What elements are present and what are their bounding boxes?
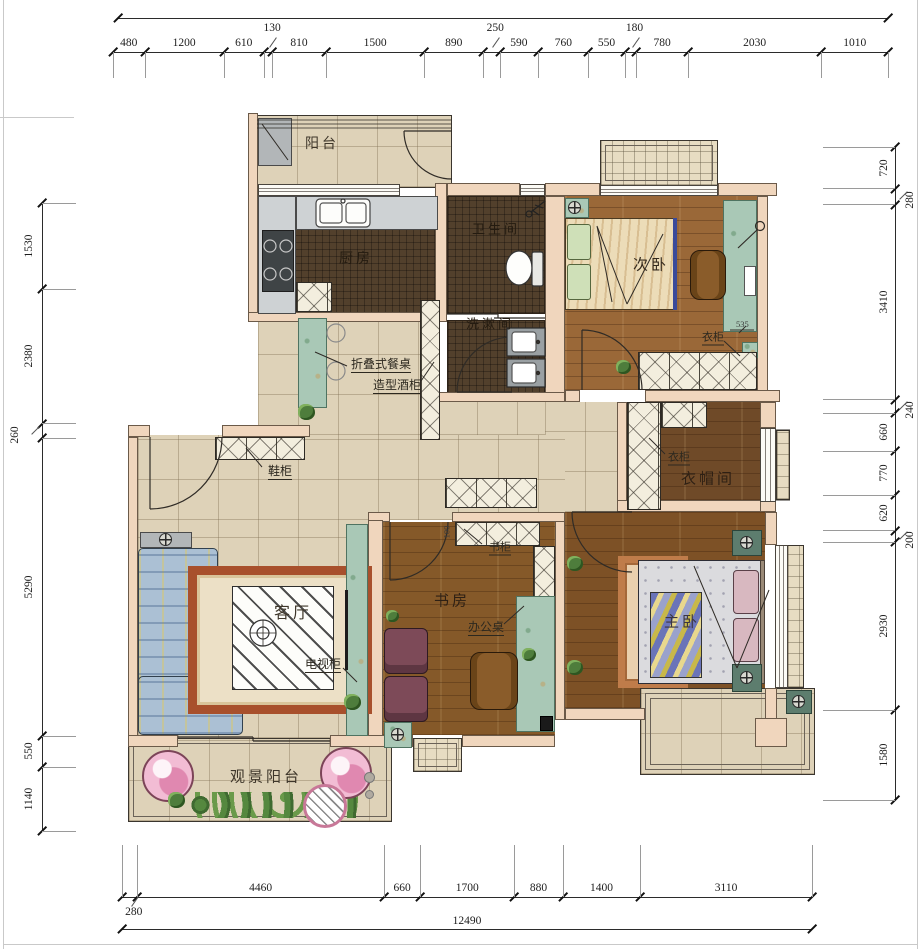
total-width-label: 12490: [453, 915, 482, 927]
dimension-label: 2030: [743, 37, 766, 49]
dimension-line: [384, 845, 385, 897]
dimension-label: 780: [654, 37, 671, 49]
dimension-label: 660: [878, 423, 890, 440]
dimension-line: [424, 52, 425, 78]
dimension-label: 1200: [173, 37, 196, 49]
dimension-line: [326, 52, 327, 78]
dimension-label: 1400: [590, 882, 613, 894]
dimension-label: 3410: [878, 290, 890, 313]
dimension-label: 2380: [23, 345, 35, 368]
dimension-label: 890: [445, 37, 462, 49]
dimension-label: 550: [598, 37, 615, 49]
dimension-line: [823, 495, 895, 496]
dimension-label: 590: [510, 37, 527, 49]
dimension-line: [42, 736, 76, 737]
dimension-line: [42, 831, 76, 832]
dimension-label: 720: [878, 159, 890, 176]
dimension-label: 610: [235, 37, 252, 49]
dimension-line: [42, 203, 76, 204]
dimension-line: [895, 147, 896, 800]
dimension-leader: [492, 37, 500, 47]
dimension-label: 620: [878, 504, 890, 521]
dimension-line: [42, 289, 76, 290]
dimension-label: 130: [263, 22, 280, 34]
dimension-line: [823, 710, 895, 711]
dimension-line: [823, 451, 895, 452]
dimension-line: [823, 147, 895, 148]
dimension-label: 250: [487, 22, 504, 34]
dimension-line: [42, 767, 76, 768]
dimension-line: [224, 52, 225, 78]
dimension-line: [137, 845, 138, 897]
dimension-label: 660: [393, 882, 410, 894]
dimension-label: 180: [626, 22, 643, 34]
dimension-label: 550: [23, 743, 35, 760]
dimension-label: 240: [904, 402, 916, 419]
dimension-line: [500, 52, 501, 78]
dimension-line: [145, 52, 146, 78]
dimension-label: 260: [9, 426, 21, 443]
dimension-line: [272, 52, 273, 78]
dimension-label: 880: [530, 882, 547, 894]
dimension-line: [122, 929, 812, 930]
dimension-line: [823, 800, 895, 801]
dimension-label: 1140: [23, 788, 35, 811]
drawing-sheet: 阳台 厨房 卫生间 洗漱间 次卧 衣帽间 客厅 书房 主卧 观景阳台 折叠式餐桌…: [0, 0, 921, 949]
dimension-line: [888, 52, 889, 78]
dimension-label: 1010: [843, 37, 866, 49]
dimension-line: [588, 52, 589, 78]
dimension-line: [483, 52, 484, 78]
dimension-line: [823, 204, 895, 205]
dimension-label: 200: [904, 532, 916, 549]
dimension-line: [636, 52, 637, 78]
dimension-line: [812, 845, 813, 897]
dimension-line: [688, 52, 689, 78]
dimension-line: [823, 530, 895, 531]
dimension-label: 810: [290, 37, 307, 49]
dimension-label: 770: [878, 464, 890, 481]
dimension-leader: [31, 426, 39, 434]
dimension-label: 1500: [364, 37, 387, 49]
dimension-tick: [807, 924, 817, 934]
dimension-leader: [632, 37, 640, 47]
dimension-line: [42, 423, 76, 424]
dimension-label: 760: [555, 37, 572, 49]
dimension-line: [538, 52, 539, 78]
dimension-label: 1700: [456, 882, 479, 894]
dimension-line: [264, 52, 265, 78]
dimension-line: [625, 52, 626, 78]
dimension-line: [42, 438, 76, 439]
dimension-line: [821, 52, 822, 78]
dimension-line: [514, 845, 515, 897]
dimension-label: 280: [904, 192, 916, 209]
dimension-label: 480: [120, 37, 137, 49]
dimension-line: [122, 897, 812, 898]
dimension-line: [563, 845, 564, 897]
dimension-label: 4460: [249, 882, 272, 894]
dimension-line: [823, 413, 895, 414]
dimension-tick: [883, 13, 893, 23]
dimension-annotations: 4801200610130810150089025059076055018078…: [0, 0, 921, 949]
dimension-line: [113, 52, 114, 78]
dimension-label: 3110: [715, 882, 738, 894]
dimension-line: [823, 188, 895, 189]
dimension-label: 1580: [878, 743, 890, 766]
dimension-line: [420, 845, 421, 897]
dimension-line: [823, 399, 895, 400]
dimension-label: 2930: [878, 614, 890, 637]
dimension-line: [640, 845, 641, 897]
dimension-line: [823, 542, 895, 543]
dimension-label: 280: [125, 906, 142, 918]
dimension-line: [118, 18, 888, 19]
dimension-label: 5290: [23, 575, 35, 598]
dimension-label: 1530: [23, 235, 35, 258]
dimension-line: [122, 845, 123, 897]
